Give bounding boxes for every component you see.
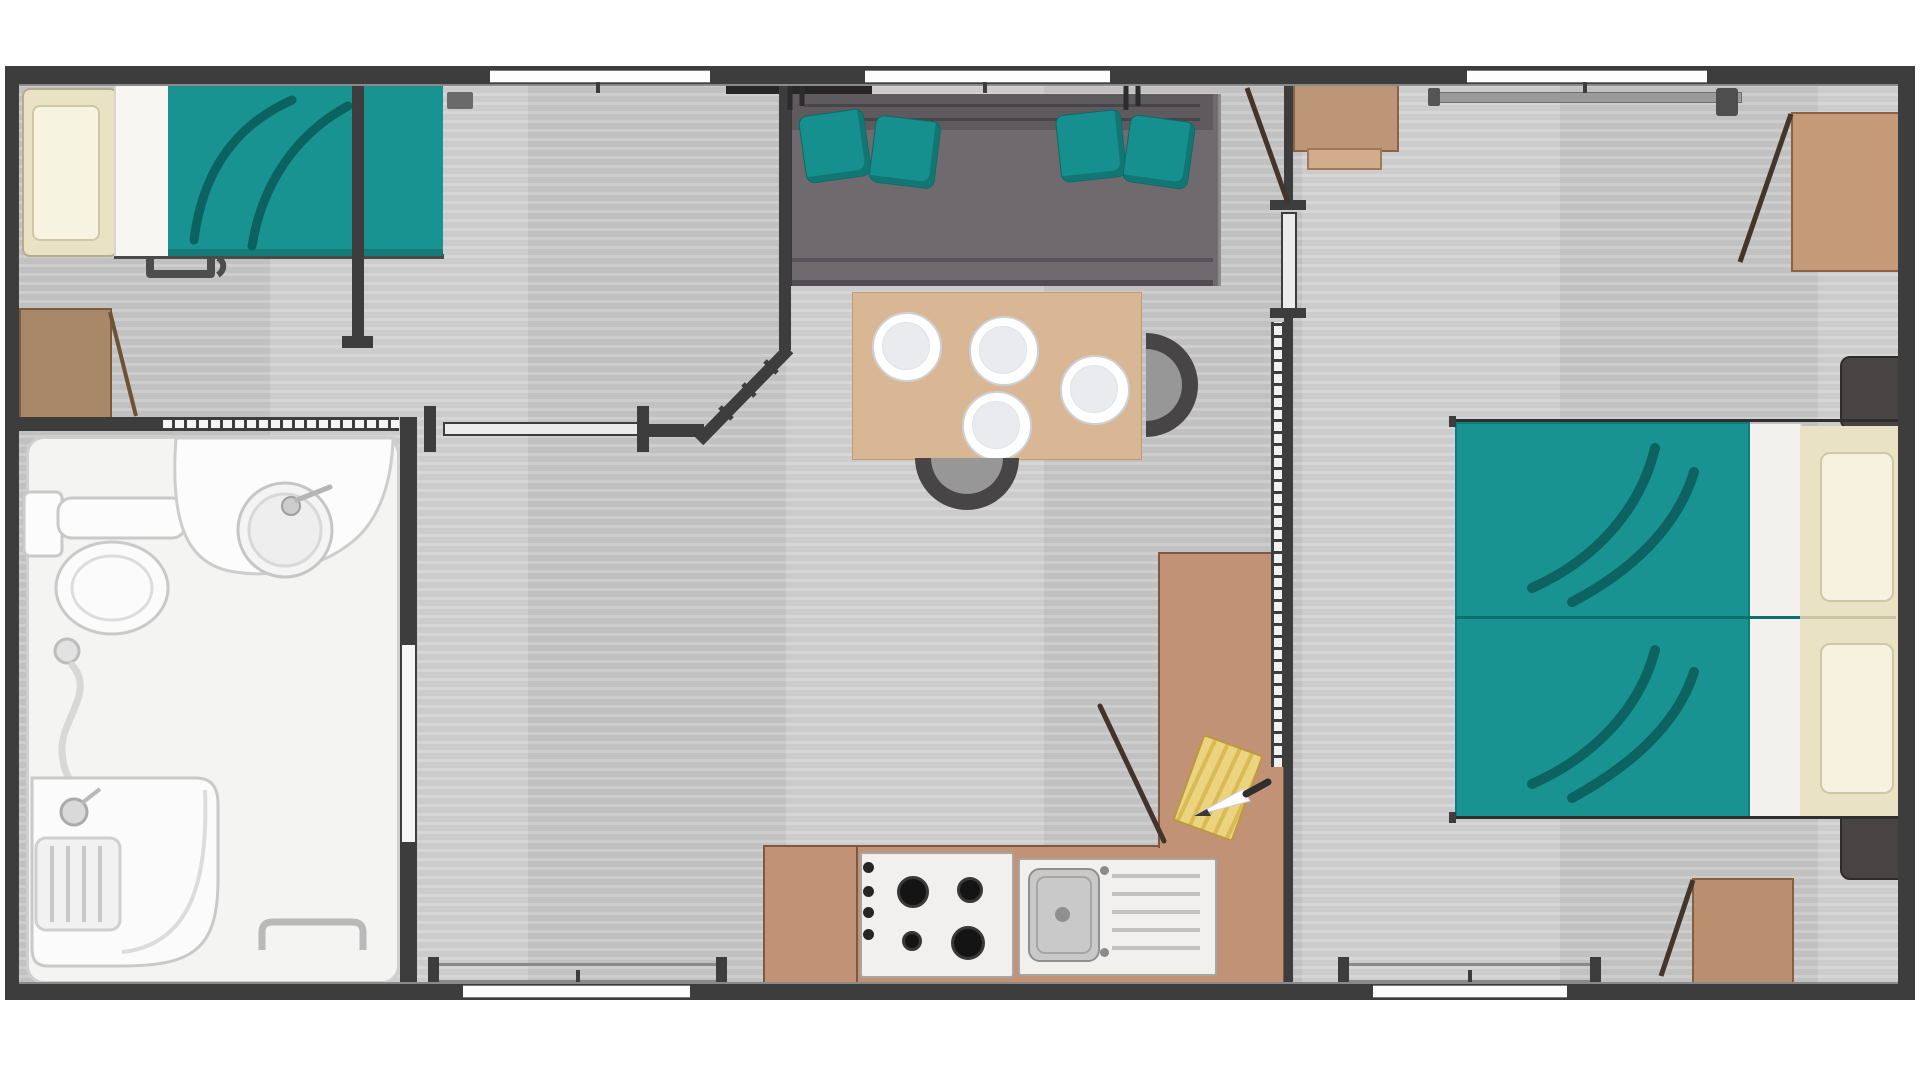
toilet-button — [55, 639, 79, 663]
diagonal-wall — [699, 349, 789, 441]
duvet-swoosh — [1532, 650, 1655, 784]
broom — [1100, 706, 1164, 841]
plan-detail-layer — [0, 0, 1920, 1080]
duvet-swoosh — [252, 106, 348, 246]
bed-step-hook — [218, 258, 223, 275]
bed-step — [150, 258, 211, 274]
floor-plan — [0, 0, 1920, 1080]
open-door-line — [1740, 114, 1791, 262]
duvet-swoosh — [1532, 448, 1655, 588]
open-door-line — [110, 312, 136, 416]
duvet-swoosh — [1572, 472, 1694, 602]
open-door-line — [1661, 880, 1693, 976]
knife-handle — [1246, 782, 1268, 794]
toilet-tank — [24, 492, 62, 556]
towel-rail — [262, 922, 363, 950]
open-door-line — [1247, 88, 1288, 203]
toilet-tank-arm — [58, 498, 186, 538]
shower-grate — [36, 838, 120, 930]
